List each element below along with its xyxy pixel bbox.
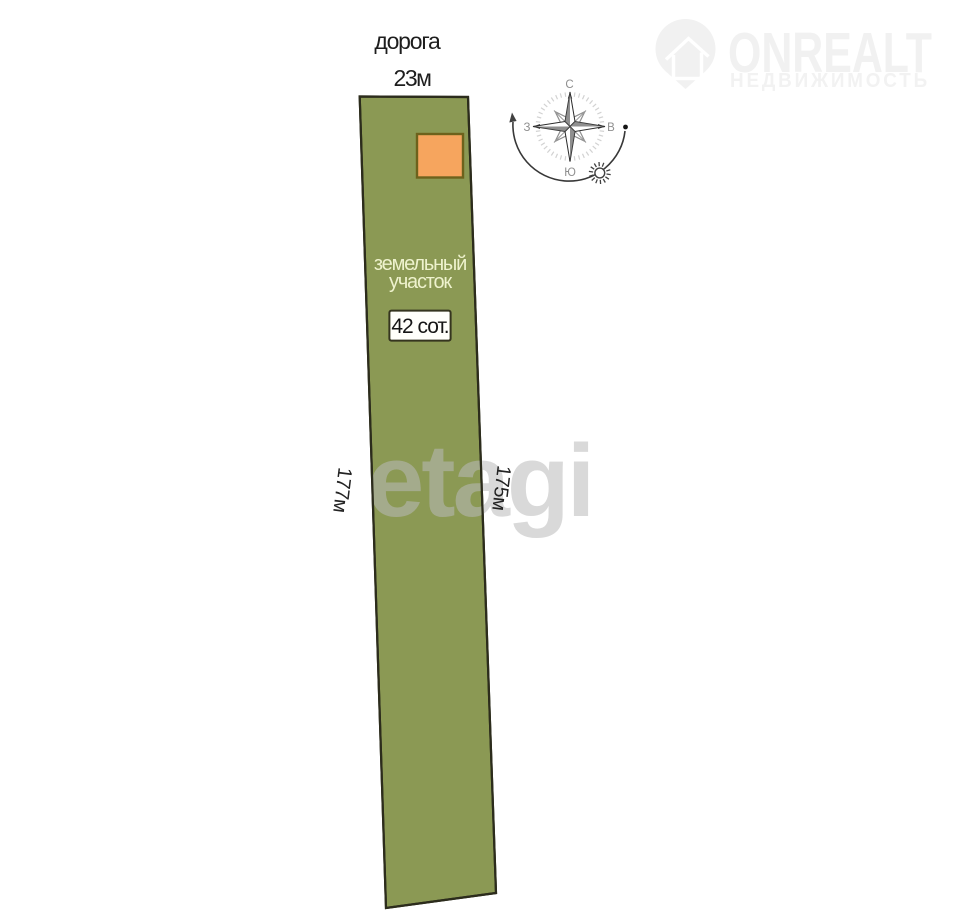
svg-text:НЕДВИЖИМОСТЬ: НЕДВИЖИМОСТЬ — [730, 70, 930, 92]
svg-text:З: З — [524, 122, 531, 134]
svg-text:23м: 23м — [394, 65, 432, 91]
svg-text:дорога: дорога — [374, 28, 441, 54]
svg-text:участок: участок — [389, 271, 452, 293]
svg-text:С: С — [565, 79, 573, 91]
svg-text:Ю: Ю — [564, 167, 576, 179]
svg-text:В: В — [607, 122, 615, 134]
svg-text:42 сот.: 42 сот. — [391, 315, 448, 338]
